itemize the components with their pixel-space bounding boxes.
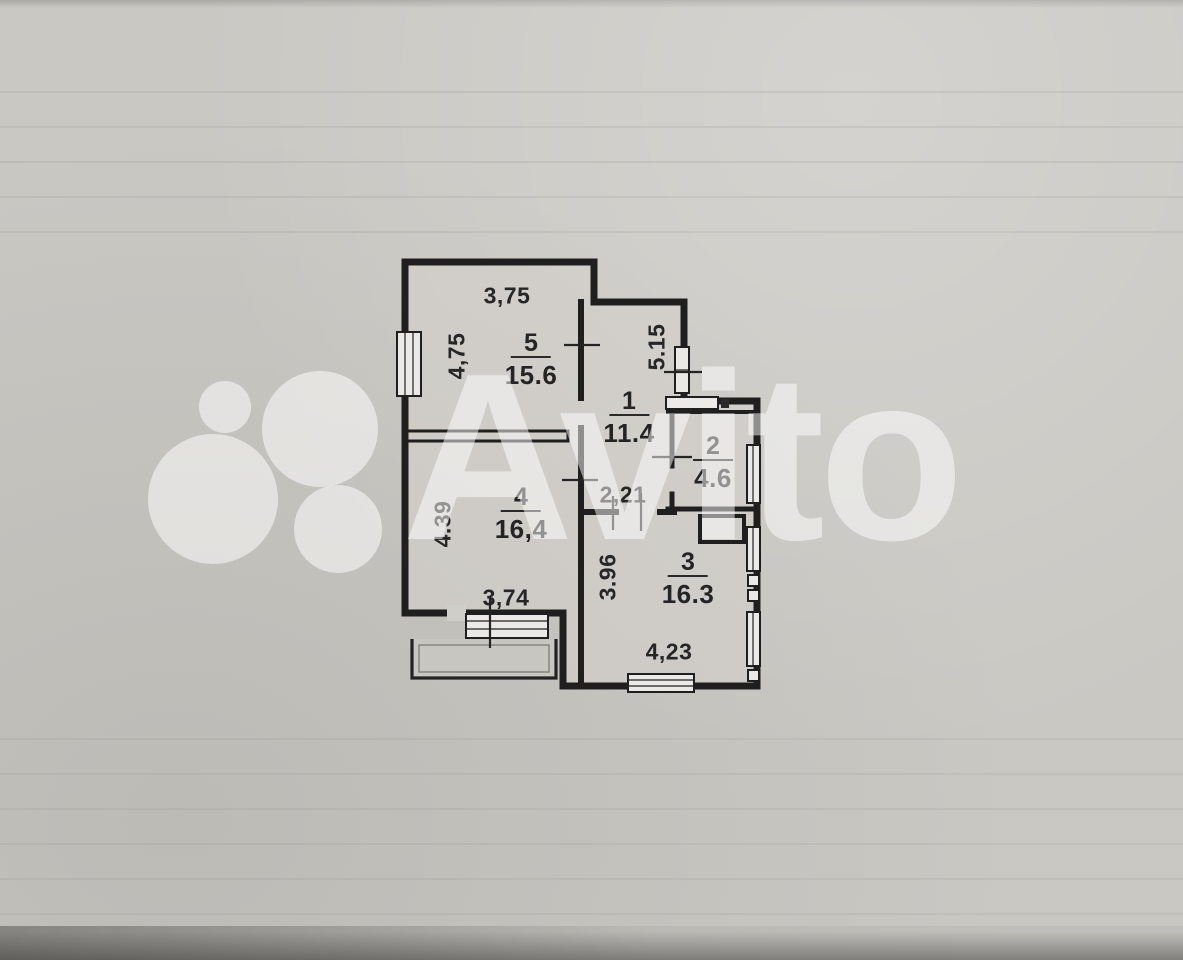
room-number: 4	[501, 484, 541, 512]
room-label-4: 4 16,4	[495, 484, 548, 545]
dimension-label: 4.39	[430, 501, 457, 548]
dimension-label: 2,21	[600, 482, 647, 509]
vent-duct-mark	[721, 399, 729, 408]
room-label-2: 2 4.6	[693, 433, 733, 494]
balcony-door-opening	[447, 605, 466, 621]
room-number: 2	[693, 433, 733, 461]
room-label-3: 3 16.3	[662, 549, 715, 610]
floor-plan-drawing	[0, 0, 1183, 960]
dimension-label: 5.15	[644, 324, 671, 371]
room-label-5: 5 15.6	[505, 330, 558, 391]
room-area: 15.6	[505, 360, 558, 391]
room-area: 16,4	[495, 514, 548, 545]
floor-plan-photo: 5 15.6 1 11.4 2 4.6 4 16,4 3 16.3 3,75 4…	[0, 0, 1183, 960]
dimension-label: 4,75	[444, 333, 471, 380]
room-number: 3	[668, 549, 708, 577]
room-number: 1	[609, 388, 649, 416]
dimension-label: 4,23	[646, 639, 693, 666]
vent-duct	[666, 397, 718, 409]
room-area: 11.4	[603, 418, 654, 449]
room-label-1: 1 11.4	[603, 388, 654, 449]
room-area: 16.3	[662, 579, 715, 610]
dimension-label: 3,74	[483, 585, 530, 612]
photo-bottom-shadow	[0, 926, 1183, 960]
dimension-label: 3.96	[595, 554, 622, 601]
dimension-label: 3,75	[484, 283, 531, 310]
utility-shaft	[700, 516, 744, 542]
room-number: 5	[511, 330, 551, 358]
room-area: 4.6	[693, 463, 733, 494]
